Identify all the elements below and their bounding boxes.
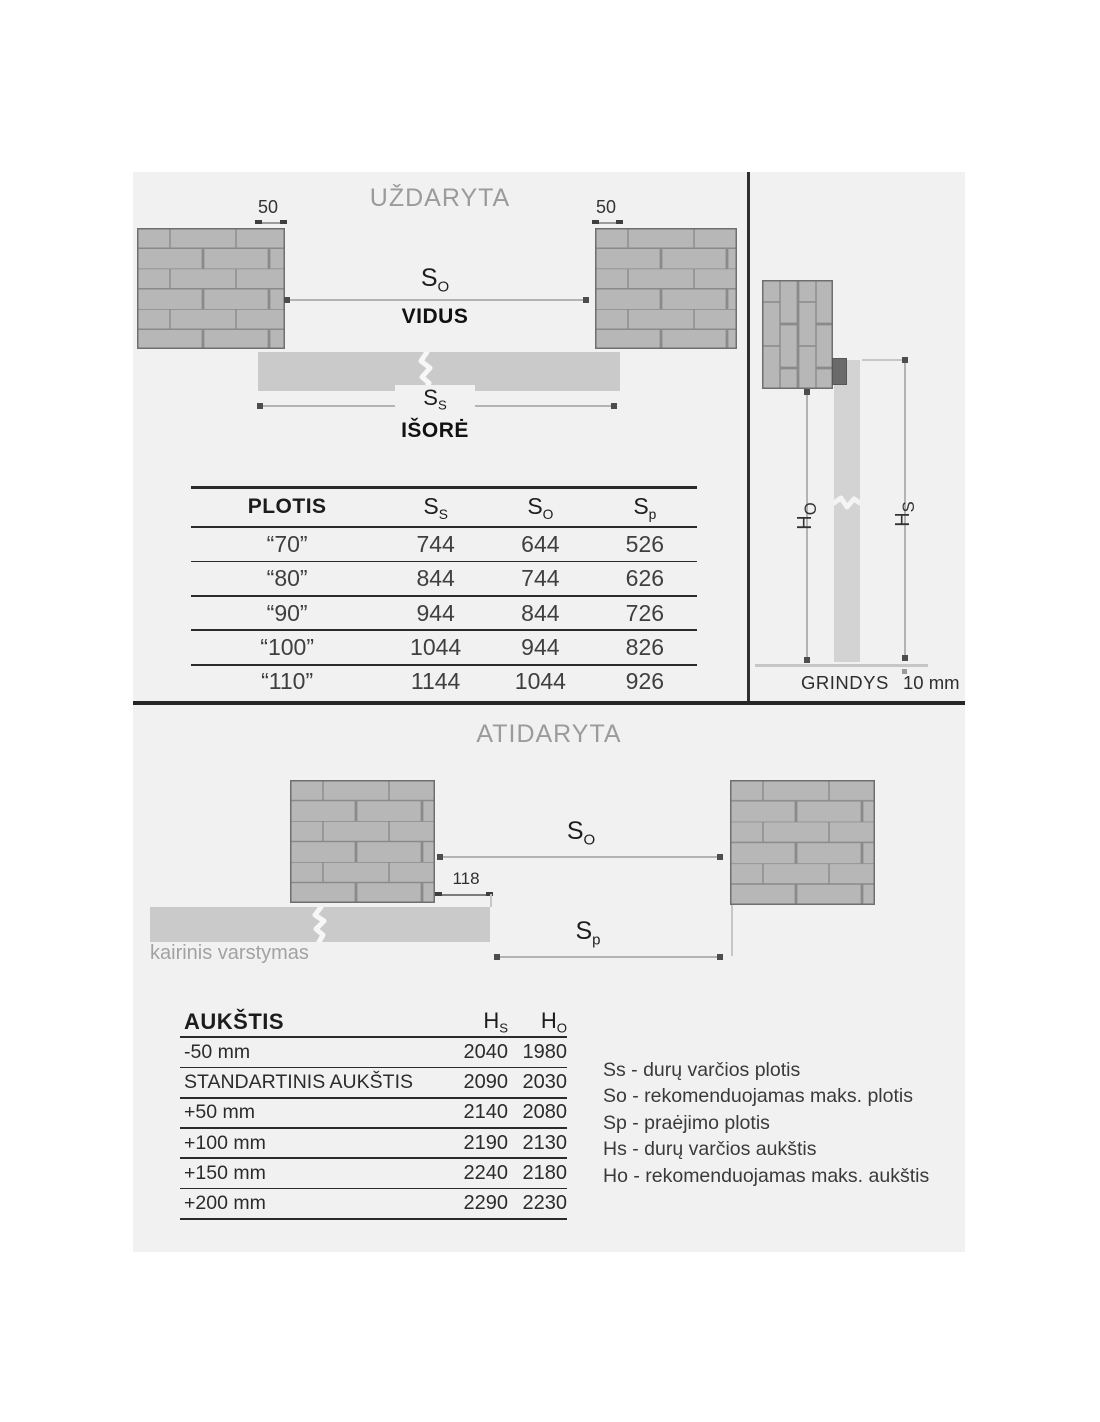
dim-endpoint (902, 655, 908, 661)
wall-offset-dim-left: 50 (238, 197, 298, 218)
closed-right-wall (595, 228, 737, 354)
ho-col-header: HO (508, 1008, 567, 1036)
dim-endpoint (902, 357, 908, 363)
table-rule (180, 1218, 567, 1220)
so-dim-line (287, 299, 588, 301)
table-row: “100” 1044 944 826 (191, 631, 697, 664)
legend-item: Ss - durų varčios plotis (603, 1057, 929, 1083)
dim-tick (435, 892, 442, 896)
so-dim-line-open (440, 856, 722, 858)
vertical-divider (747, 172, 750, 704)
legend: Ss - durų varčios plotis So - rekomenduo… (603, 1057, 929, 1189)
plotis-table: PLOTIS SS SO Sp “70” 744 644 526 “80” 84… (191, 486, 697, 698)
table-row: +50 mm 2140 2080 (180, 1099, 567, 1128)
extension-line (862, 359, 904, 361)
plotis-header: PLOTIS (191, 495, 383, 519)
closed-section-title: UŽDARYTA (133, 184, 747, 213)
overlap-dim-line (439, 894, 491, 896)
dim-tick (280, 220, 287, 224)
so-col-header: SO (488, 493, 593, 522)
dim-endpoint (717, 854, 723, 860)
aukstis-table: AUKŠTIS HS HO -50 mm 2040 1980 STANDARTI… (180, 1008, 567, 1220)
door-break-mark (311, 907, 329, 947)
floor-label: GRINDYS (801, 672, 889, 694)
dim-endpoint (437, 854, 443, 860)
dim-endpoint (717, 954, 723, 960)
wall-offset-dim-right: 50 (576, 197, 636, 218)
ho-dim-label: HO (794, 494, 816, 538)
dim-endpoint (804, 657, 810, 663)
dim-endpoint (494, 954, 500, 960)
dim-tick (616, 220, 623, 224)
outside-label: IŠORĖ (335, 419, 535, 443)
dim-tick (255, 220, 262, 224)
sp-dim-label: Sp (558, 917, 618, 948)
dim-tick (592, 220, 599, 224)
table-row: +100 mm 2190 2130 (180, 1129, 567, 1158)
dim-endpoint (804, 389, 810, 395)
ss-dim-label: SS (395, 385, 475, 413)
aukstis-header: AUKŠTIS (180, 1009, 420, 1035)
swing-direction-label: kairinis varstymas (150, 942, 309, 965)
hs-col-header: HS (420, 1008, 508, 1036)
sp-dim-line (497, 956, 722, 958)
so-dim-label-open: SO (551, 817, 611, 848)
floor-gap-label: 10 mm (903, 672, 960, 694)
dim-endpoint (284, 297, 290, 303)
horizontal-divider (133, 701, 965, 705)
track-block (832, 358, 847, 385)
section-wall (762, 280, 833, 394)
extension-line (490, 894, 492, 907)
legend-item: Ho - rekomenduojamas maks. aukštis (603, 1163, 929, 1189)
table-header-row: PLOTIS SS SO Sp (191, 489, 697, 526)
table-row: +150 mm 2240 2180 (180, 1159, 567, 1188)
table-header-row: AUKŠTIS HS HO (180, 1008, 567, 1036)
ss-col-header: SS (383, 493, 488, 522)
hs-dim-label: HS (892, 492, 914, 536)
open-section-title: ATIDARYTA (133, 720, 965, 749)
dim-endpoint (583, 297, 589, 303)
legend-item: Hs - durų varčios aukštis (603, 1136, 929, 1162)
table-row: “80” 844 744 626 (191, 562, 697, 595)
table-row: -50 mm 2040 1980 (180, 1038, 567, 1067)
open-left-wall (290, 780, 435, 908)
table-row: “70” 744 644 526 (191, 528, 697, 561)
floor-line (755, 664, 928, 667)
dim-endpoint (611, 403, 617, 409)
closed-left-wall (137, 228, 285, 354)
table-row: “90” 944 844 726 (191, 597, 697, 630)
overlap-dim-label: 118 (443, 869, 489, 889)
dim-endpoint (257, 403, 263, 409)
legend-item: Sp - praėjimo plotis (603, 1110, 929, 1136)
drawing-sheet: UŽDARYTA 50 50 (133, 172, 965, 1252)
table-row: STANDARTINIS AUKŠTIS 2090 2030 (180, 1068, 567, 1097)
open-right-wall (730, 780, 875, 910)
sp-col-header: Sp (593, 493, 697, 522)
inside-label: VIDUS (335, 305, 535, 329)
door-break-mark (834, 494, 860, 517)
so-dim-label: SO (385, 264, 485, 295)
table-row: +200 mm 2290 2230 (180, 1189, 567, 1218)
table-row: “110” 1144 1044 926 (191, 666, 697, 699)
extension-line (731, 905, 733, 956)
legend-item: So - rekomenduojamas maks. plotis (603, 1083, 929, 1109)
